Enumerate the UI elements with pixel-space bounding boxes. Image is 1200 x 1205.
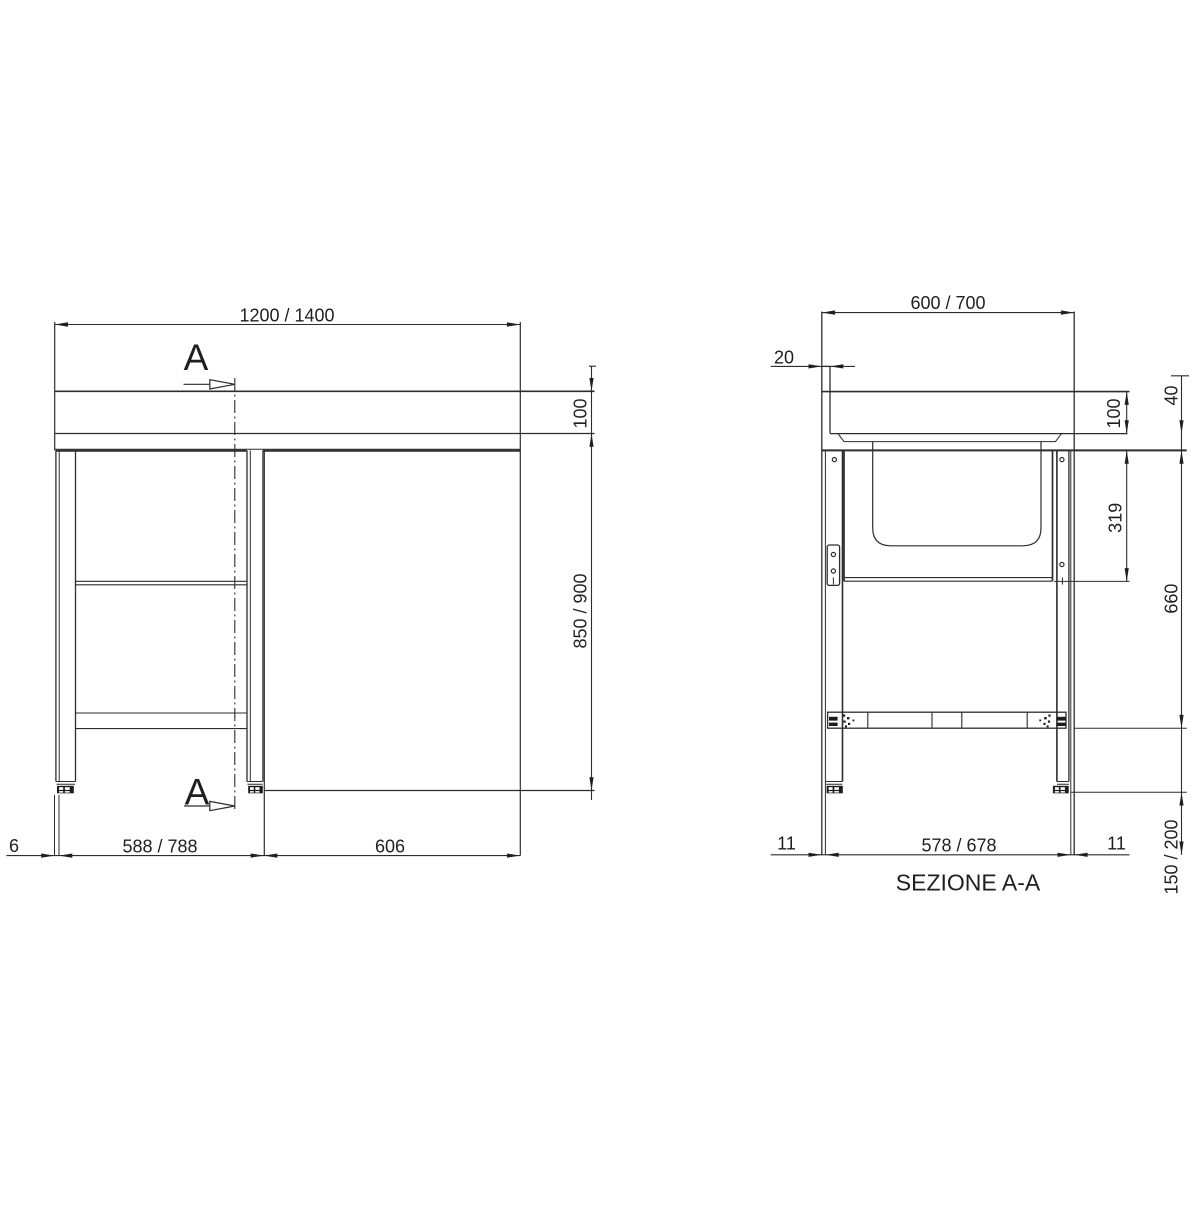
svg-text:588 / 788: 588 / 788 <box>122 836 197 856</box>
svg-text:578 / 678: 578 / 678 <box>921 836 996 856</box>
svg-text:A: A <box>184 337 209 378</box>
svg-text:SEZIONE A-A: SEZIONE A-A <box>896 870 1041 896</box>
svg-text:100: 100 <box>571 398 591 428</box>
svg-text:11: 11 <box>777 834 796 854</box>
svg-text:606: 606 <box>375 836 405 856</box>
svg-text:11: 11 <box>1107 834 1126 854</box>
svg-text:100: 100 <box>1104 398 1124 428</box>
svg-text:150 / 200: 150 / 200 <box>1161 819 1181 894</box>
svg-text:660: 660 <box>1161 584 1181 614</box>
svg-text:20: 20 <box>774 347 794 367</box>
svg-text:6: 6 <box>9 836 19 856</box>
svg-text:600 / 700: 600 / 700 <box>910 293 985 313</box>
svg-text:319: 319 <box>1106 503 1126 533</box>
svg-text:850 / 900: 850 / 900 <box>571 573 591 648</box>
svg-text:40: 40 <box>1162 385 1182 405</box>
svg-text:1200 / 1400: 1200 / 1400 <box>239 306 334 326</box>
